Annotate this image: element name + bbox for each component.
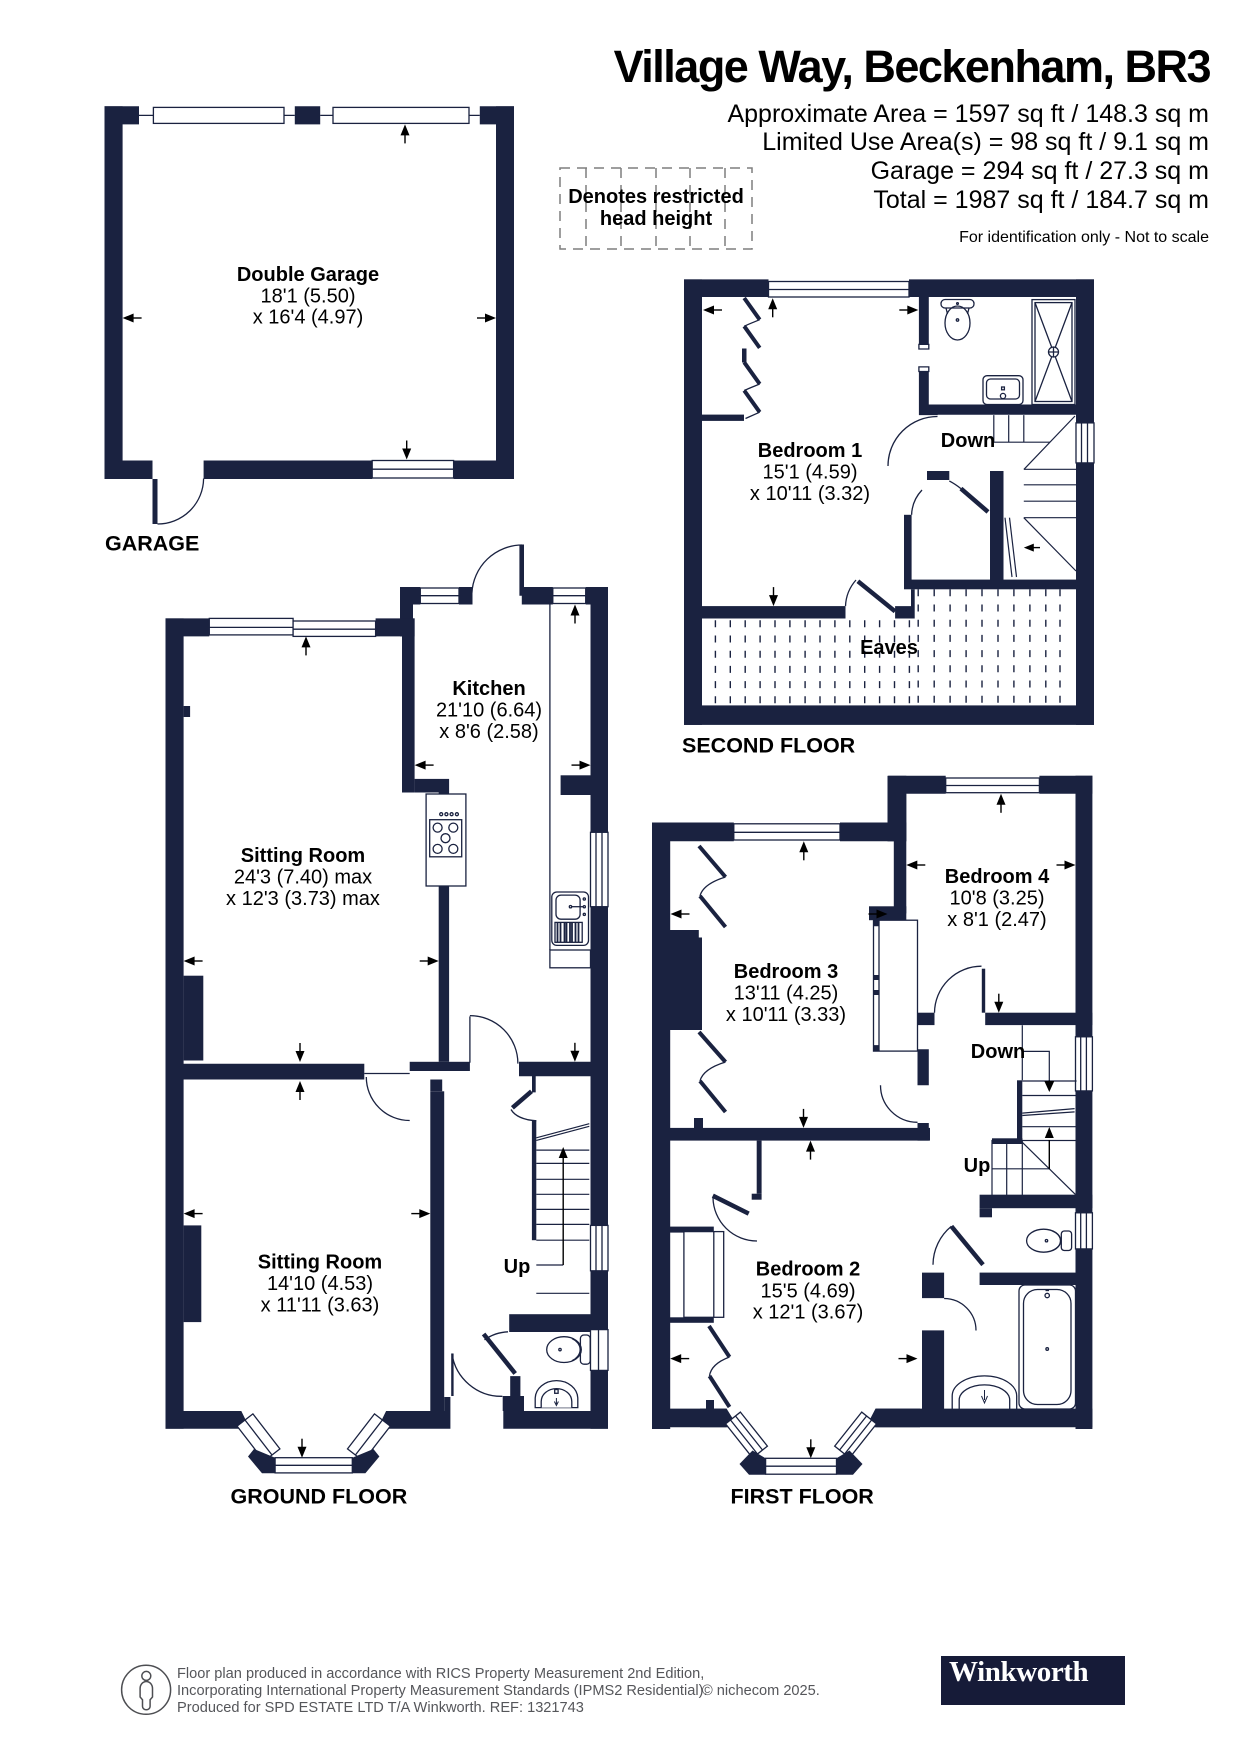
svg-text:GARAGE: GARAGE — [105, 532, 199, 556]
svg-text:FIRST FLOOR: FIRST FLOOR — [731, 1485, 875, 1509]
svg-text:Up: Up — [964, 1155, 991, 1177]
svg-text:14'10 (4.53): 14'10 (4.53) — [267, 1273, 373, 1295]
svg-text:SECOND FLOOR: SECOND FLOOR — [682, 734, 856, 758]
svg-text:Bedroom 4: Bedroom 4 — [945, 866, 1050, 888]
svg-text:head height: head height — [600, 208, 713, 230]
svg-text:Garage = 294 sq ft / 27.3 sq m: Garage = 294 sq ft / 27.3 sq m — [871, 157, 1209, 185]
svg-text:x 8'1 (2.47): x 8'1 (2.47) — [947, 909, 1046, 931]
svg-text:Bedroom 3: Bedroom 3 — [734, 961, 838, 983]
svg-text:Bedroom 2: Bedroom 2 — [756, 1259, 860, 1281]
svg-text:15'1 (4.59): 15'1 (4.59) — [763, 462, 858, 484]
svg-text:15'5 (4.69): 15'5 (4.69) — [761, 1281, 856, 1303]
svg-text:© nichecom 2025.: © nichecom 2025. — [702, 1683, 820, 1699]
svg-text:Double Garage: Double Garage — [237, 264, 379, 286]
svg-text:Approximate Area = 1597 sq ft: Approximate Area = 1597 sq ft / 148.3 sq… — [727, 100, 1209, 128]
svg-text:Total = 1987 sq ft / 184.7 sq: Total = 1987 sq ft / 184.7 sq m — [873, 186, 1209, 214]
svg-text:x 10'11 (3.33): x 10'11 (3.33) — [726, 1004, 846, 1026]
svg-text:24'3 (7.40) max: 24'3 (7.40) max — [234, 867, 372, 889]
svg-text:Village Way, Beckenham, BR3: Village Way, Beckenham, BR3 — [614, 41, 1211, 92]
svg-text:Limited Use Area(s) = 98 sq ft: Limited Use Area(s) = 98 sq ft / 9.1 sq … — [762, 128, 1209, 156]
svg-text:Sitting Room: Sitting Room — [241, 845, 365, 867]
svg-text:Bedroom 1: Bedroom 1 — [758, 440, 862, 462]
svg-text:Incorporating International Pr: Incorporating International Property Mea… — [177, 1683, 708, 1699]
svg-text:10'8 (3.25): 10'8 (3.25) — [950, 888, 1045, 910]
svg-text:21'10 (6.64): 21'10 (6.64) — [436, 700, 542, 722]
svg-text:Sitting Room: Sitting Room — [258, 1252, 382, 1274]
svg-text:Winkworth: Winkworth — [949, 1656, 1089, 1688]
svg-text:13'11 (4.25): 13'11 (4.25) — [734, 983, 839, 1005]
svg-text:Produced for SPD ESTATE LTD T/: Produced for SPD ESTATE LTD T/A Winkwort… — [177, 1700, 584, 1716]
svg-text:GROUND FLOOR: GROUND FLOOR — [231, 1485, 408, 1509]
svg-text:Down: Down — [941, 430, 995, 452]
svg-text:x 10'11 (3.32): x 10'11 (3.32) — [750, 483, 870, 505]
svg-text:x 16'4 (4.97): x 16'4 (4.97) — [253, 307, 364, 329]
svg-text:For identification only - Not: For identification only - Not to scale — [959, 229, 1209, 246]
svg-text:Denotes restricted: Denotes restricted — [568, 186, 744, 208]
svg-text:Eaves: Eaves — [860, 637, 918, 659]
svg-text:x 12'1 (3.67): x 12'1 (3.67) — [753, 1302, 864, 1324]
svg-text:Down: Down — [971, 1041, 1025, 1063]
svg-text:x 8'6 (2.58): x 8'6 (2.58) — [439, 721, 538, 743]
svg-text:18'1 (5.50): 18'1 (5.50) — [261, 285, 356, 307]
svg-text:Up: Up — [504, 1256, 531, 1278]
svg-text:Floor plan produced in accorda: Floor plan produced in accordance with R… — [177, 1666, 704, 1682]
svg-text:x 11'11 (3.63): x 11'11 (3.63) — [261, 1295, 380, 1317]
svg-text:x 12'3 (3.73) max: x 12'3 (3.73) max — [226, 888, 380, 910]
svg-text:Kitchen: Kitchen — [452, 678, 525, 700]
